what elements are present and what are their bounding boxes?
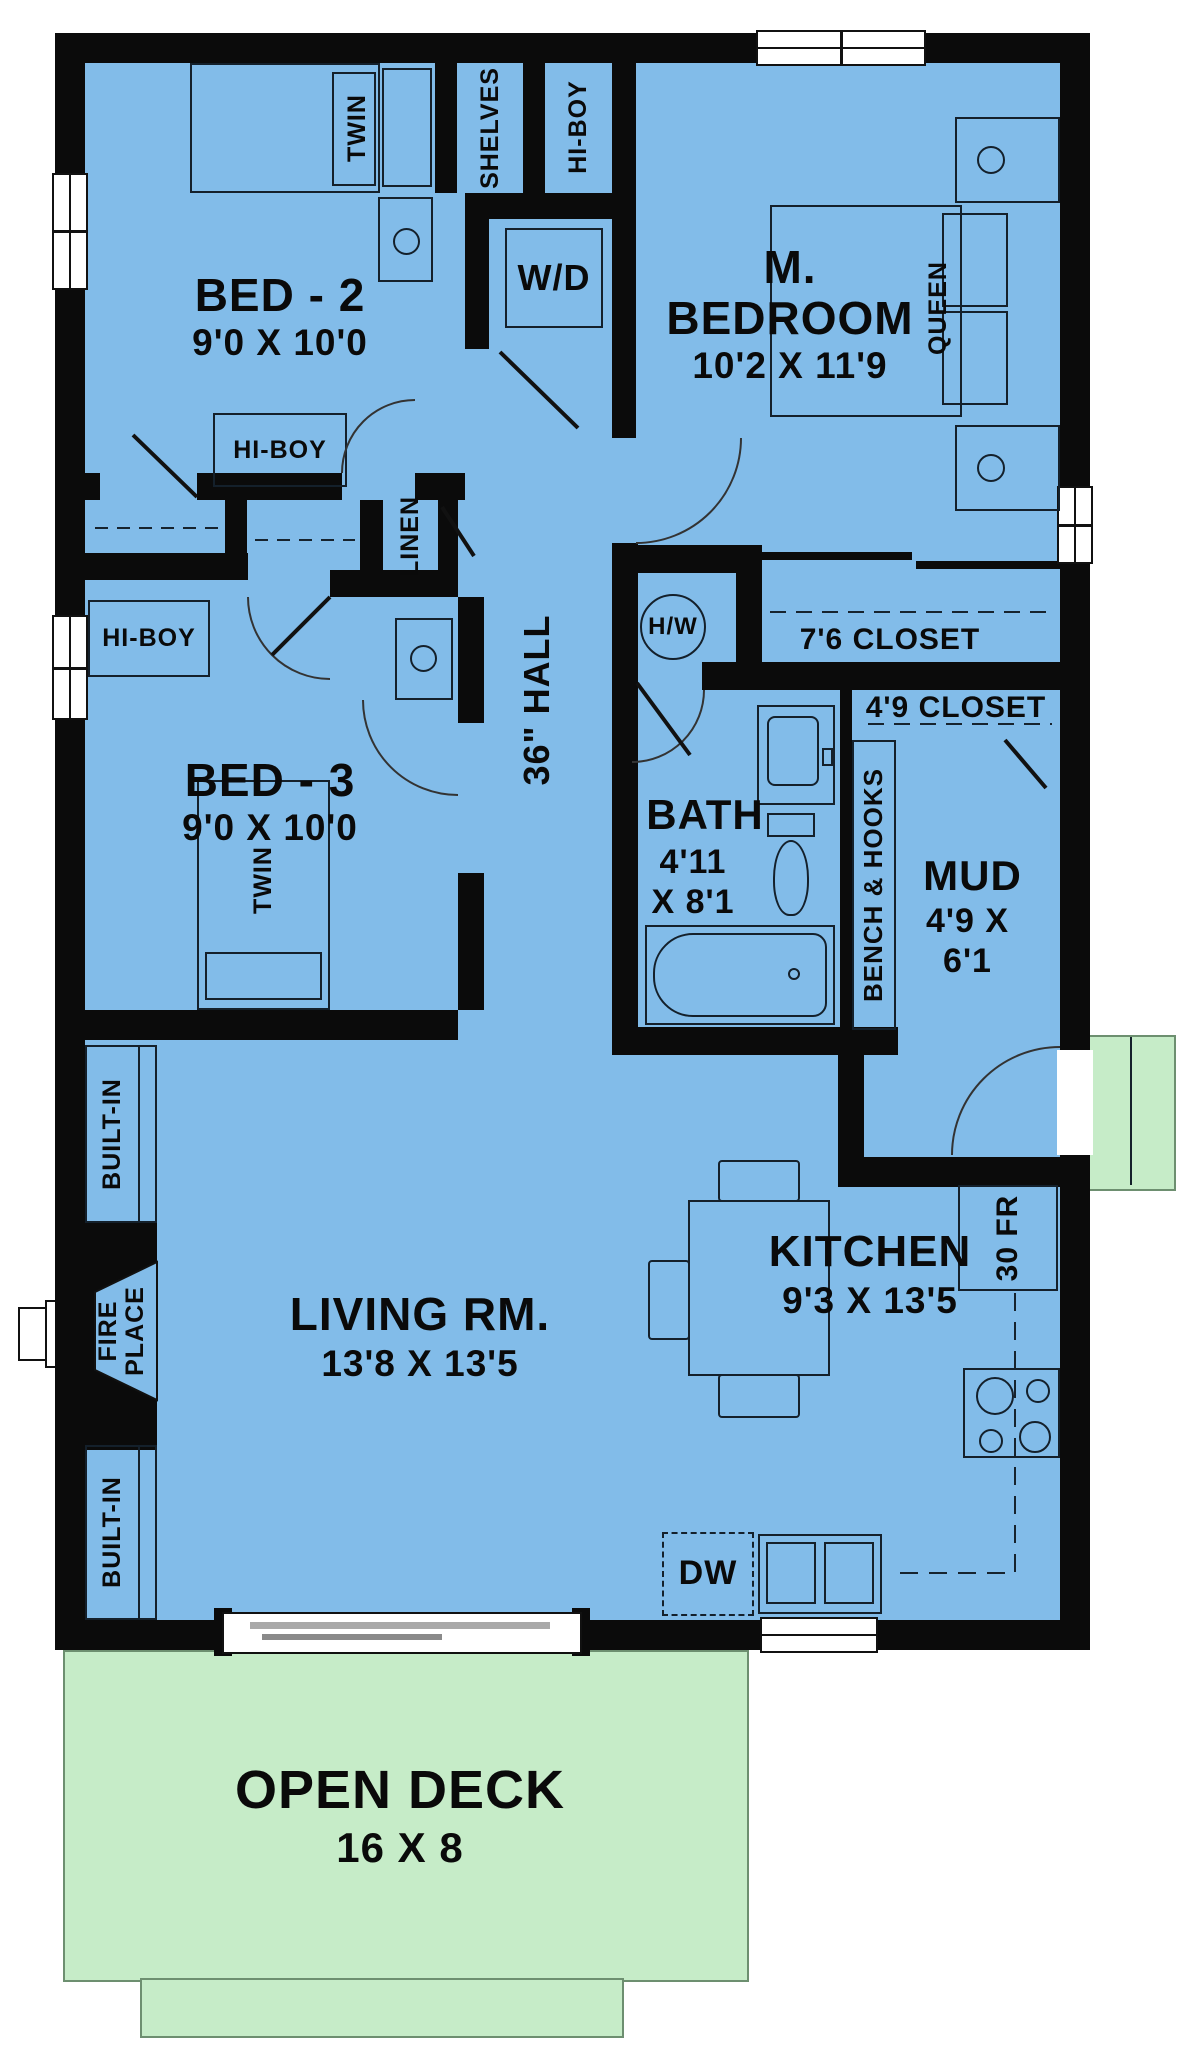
bench-hooks-label: BENCH & HOOKS [854, 735, 894, 1035]
side-stoop-divider [1130, 1037, 1132, 1185]
builtin-lower-label: BUILT-IN [98, 1447, 126, 1617]
shelves-label: SHELVES [477, 63, 503, 193]
bed3-pillow [205, 952, 322, 1000]
chair-left [648, 1260, 690, 1340]
chair-top [718, 1160, 800, 1202]
master-lamp-top [977, 146, 1005, 174]
window-bed2-left [52, 173, 88, 290]
fireplace-label-line2: PLACE [122, 1286, 150, 1376]
wall-wd-top [465, 193, 636, 219]
builtin-upper-label: BUILT-IN [98, 1049, 126, 1219]
hw-label: H/W [640, 594, 706, 660]
deck-step [140, 1978, 624, 2038]
hiboy-closet-label: HI-BOY [565, 62, 591, 192]
wall-closet-div-b [360, 500, 383, 570]
bed3-lamp [410, 645, 437, 672]
wall-bed3-right-a [458, 597, 484, 723]
wall-wd-left [465, 219, 489, 349]
master-nightstand-bottom [955, 425, 1060, 511]
kitchen-dims: 9'3 X 13'5 [740, 1280, 1000, 1322]
hiboy-bed2-label: HI-BOY [213, 413, 347, 487]
burner-1 [976, 1377, 1014, 1415]
slider-panel-a [250, 1622, 550, 1629]
slider-panel-b [262, 1634, 442, 1640]
hiboy-bed3-label: HI-BOY [88, 600, 210, 677]
window-master-top [756, 30, 926, 66]
deck-dims: 16 X 8 [230, 1824, 570, 1872]
wall-shelves-hiboy [523, 63, 545, 193]
wall-left-2 [55, 290, 85, 615]
wall-bed3-right-b [458, 873, 484, 1010]
wall-right-1 [1060, 33, 1090, 490]
toilet-bowl [773, 840, 809, 916]
chair-bottom [718, 1374, 800, 1418]
closet76-label: 7'6 CLOSET [790, 622, 990, 658]
bed3-label: BED - 3 [140, 755, 400, 805]
master-label-1: M. [700, 243, 880, 291]
bath-dims-2: X 8'1 [618, 884, 768, 922]
wd-label: W/D [505, 228, 603, 328]
wall-bath-bench-divider [840, 662, 852, 1030]
floor-plan: BED - 2 9'0 X 10'0 M. BEDROOM 10'2 X 11'… [0, 0, 1200, 2057]
master-label-2: BEDROOM [640, 293, 940, 343]
wall-left-3 [55, 720, 85, 1650]
wall-master-left-upper [612, 63, 636, 438]
master-nightstand-top [955, 117, 1060, 203]
fridge-label: 30 FR [990, 1168, 1026, 1308]
tub-drain [788, 968, 800, 980]
living-label: LIVING RM. [230, 1288, 610, 1340]
bed3-twin-label: TWIN [248, 810, 278, 950]
wall-linen-right [438, 500, 458, 570]
kitchen-label: KITCHEN [730, 1228, 1010, 1276]
mud-dims-2: 6'1 [900, 942, 1035, 982]
bath-faucet [822, 748, 833, 766]
deck-label: OPEN DECK [170, 1760, 630, 1820]
fireplace-label: FIRE PLACE [92, 1251, 152, 1411]
builtin-upper-line [138, 1047, 140, 1221]
side-stoop [1088, 1035, 1176, 1191]
wall-bed2-shelves [435, 63, 457, 193]
burner-3 [979, 1429, 1003, 1453]
bed2-label: BED - 2 [150, 270, 410, 320]
wall-top-left [55, 33, 760, 63]
master-dims: 10'2 X 11'9 [660, 345, 920, 387]
master-lamp-bottom [977, 454, 1005, 482]
closet76-slider-a [762, 552, 912, 560]
bathtub-inner [653, 933, 827, 1017]
bath-dims-1: 4'11 [618, 844, 768, 882]
mud-dims-1: 4'9 X [900, 902, 1035, 942]
bed2-lamp [393, 228, 420, 255]
wall-bottom-1 [55, 1620, 225, 1650]
fireplace-label-line1: FIRE [95, 1286, 123, 1376]
hall-label: 36" HALL [515, 590, 559, 810]
burner-4 [1019, 1421, 1051, 1453]
queen-label: QUEEN [923, 228, 953, 388]
wall-bed3-top-a [85, 553, 248, 580]
window-kitchen-sink [760, 1617, 878, 1653]
wall-bottom-2 [582, 1620, 760, 1650]
wall-bath-top-a [612, 662, 632, 690]
window-master-right [1057, 486, 1093, 564]
closet49-label: 4'9 CLOSET [856, 690, 1056, 726]
mud-door-opening [1057, 1050, 1093, 1155]
bed2-dresser [382, 68, 432, 187]
wall-bed3-top-b [330, 570, 458, 597]
bath-sink-basin [767, 716, 819, 786]
wall-bottom-3 [878, 1620, 1090, 1650]
wall-right-2 [1060, 562, 1090, 1050]
wall-bath-top-b [702, 662, 1060, 690]
wall-bed2-bottom-a [85, 473, 100, 500]
bed2-dims: 9'0 X 10'0 [150, 322, 410, 364]
builtin-lower-line [138, 1447, 140, 1618]
burner-2 [1026, 1379, 1050, 1403]
wall-right-3 [1060, 1155, 1090, 1650]
dw-label: DW [662, 1532, 754, 1616]
wall-left-1 [55, 33, 85, 173]
window-bed3-left [52, 615, 88, 720]
bed2-twin-label: TWIN [342, 58, 372, 198]
bath-label: BATH [620, 792, 790, 838]
mud-label: MUD [900, 852, 1045, 900]
sink-basin-right [824, 1542, 874, 1604]
wall-mud-bottom [838, 1157, 1060, 1187]
sliding-glass-door [222, 1612, 582, 1654]
linen-label: LINEN [397, 481, 423, 591]
sink-basin-left [766, 1542, 816, 1604]
living-dims: 13'8 X 13'5 [240, 1342, 600, 1386]
closet76-slider-b [916, 561, 1060, 569]
wall-bed3-bottom [55, 1010, 458, 1040]
